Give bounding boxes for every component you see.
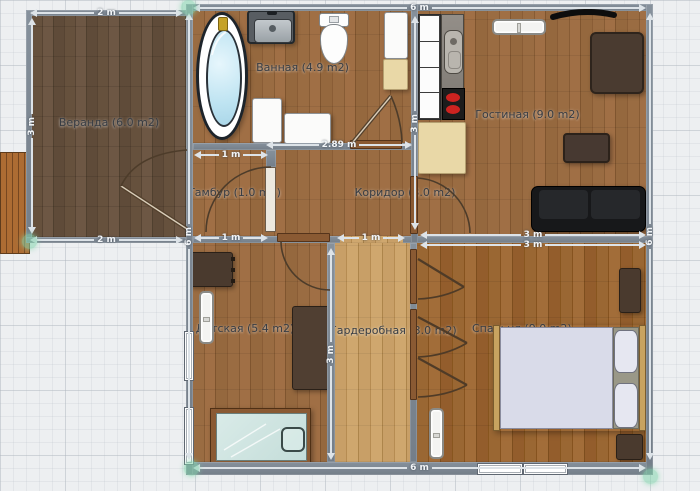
cabinet-front	[420, 93, 439, 118]
dim-veranda-top: 2 m	[30, 8, 183, 18]
sofa-cushion	[539, 190, 588, 219]
stove-burner	[446, 93, 460, 102]
kitchen-sink	[444, 30, 463, 74]
dim-nursery-right: 3 m	[326, 248, 336, 460]
corner-handle[interactable]	[22, 234, 37, 249]
desk-knob	[231, 257, 235, 261]
wardrobe-folding-door-upper[interactable]	[410, 249, 417, 304]
radiator-tick	[203, 317, 211, 322]
dim-veranda-left: 3 m	[27, 18, 37, 234]
room-label-wardrobe: Гардеробная (3.0 m2)	[330, 324, 440, 337]
coffee-table[interactable]	[563, 133, 610, 163]
dim-house-left: 6 m	[184, 13, 194, 460]
door-corridor-nursery[interactable]	[277, 233, 330, 242]
stove-burner	[446, 105, 460, 114]
bath-faucet-icon	[218, 17, 228, 31]
sink-drain	[450, 38, 457, 45]
room-label-living: Гостиная (9.0 m2)	[465, 108, 590, 121]
nightstand[interactable]	[616, 434, 643, 460]
dim-house-right: 6 m	[645, 13, 655, 460]
dim-house-top: 6 m	[193, 3, 646, 13]
desk-knob	[231, 268, 235, 272]
bathroom-sink[interactable]	[247, 10, 295, 44]
desk-knob	[231, 279, 235, 283]
cabinet-front	[420, 16, 439, 41]
glass-table[interactable]	[210, 408, 311, 464]
dim-living-bottom: 3 m	[420, 230, 646, 240]
bed-pillow	[614, 330, 638, 373]
cabinet-front	[420, 68, 439, 93]
bed-blanket	[500, 327, 613, 429]
living-radiator[interactable]	[492, 19, 546, 35]
kitchen-stove	[442, 88, 465, 120]
cabinet-front	[420, 42, 439, 67]
dim-bathroom-width: 2.89 m	[266, 140, 412, 150]
dim-living-left: 3 m	[410, 16, 420, 230]
kitchen-fridge-column[interactable]	[418, 14, 441, 120]
bed-pillow	[614, 383, 638, 428]
bathroom-cabinet-low[interactable]	[252, 98, 282, 143]
room-wardrobe[interactable]	[335, 243, 410, 462]
door-tambour-corridor[interactable]	[265, 167, 276, 232]
bed-footboard	[493, 325, 500, 431]
room-label-corridor: Коридор (3.0 m2)	[345, 186, 465, 199]
dim-bedroom-top: 3 m	[420, 240, 646, 250]
kitchen-counter[interactable]	[441, 14, 464, 120]
bedroom-radiator[interactable]	[429, 408, 444, 459]
toilet[interactable]	[317, 13, 349, 63]
laundry-basket[interactable]	[383, 59, 408, 90]
dim-tambour-bottom: 1 m	[194, 233, 268, 243]
dining-table[interactable]	[590, 32, 644, 94]
double-bed[interactable]	[493, 325, 646, 431]
floorplan-canvas: Веранда (6.0 m2) Ванная (4.9 m2) Гостина…	[0, 0, 700, 491]
sofa-cushion	[591, 190, 640, 219]
toilet-bowl	[320, 24, 348, 64]
sink-drain	[269, 25, 276, 32]
corner-handle[interactable]	[184, 461, 199, 476]
nursery-wardrobe[interactable]	[292, 306, 330, 390]
dim-tambour-top: 1 m	[194, 150, 268, 160]
nursery-radiator[interactable]	[199, 291, 214, 344]
dim-corridor-opening: 1 m	[337, 233, 405, 243]
room-label-veranda: Веранда (6.0 m2)	[40, 116, 178, 129]
glass-object	[281, 427, 305, 452]
sofa[interactable]	[531, 186, 646, 232]
wardrobe-folding-door-lower[interactable]	[410, 309, 417, 400]
radiator-tick	[517, 23, 521, 33]
bathtub[interactable]	[196, 12, 248, 140]
nursery-desk[interactable]	[189, 252, 233, 287]
radiator-tick	[433, 433, 441, 438]
dim-veranda-bottom: 2 m	[30, 235, 183, 245]
dim-house-bottom: 6 m	[193, 463, 646, 473]
corner-handle[interactable]	[181, 0, 196, 15]
bedroom-dresser[interactable]	[619, 268, 641, 313]
corner-handle[interactable]	[643, 469, 658, 484]
bathtub-water	[206, 29, 242, 127]
toilet-button	[329, 16, 339, 23]
sink-drainer	[448, 51, 461, 69]
bathroom-tall-cabinet[interactable]	[384, 12, 408, 59]
kitchen-island-cabinet[interactable]	[418, 122, 466, 174]
